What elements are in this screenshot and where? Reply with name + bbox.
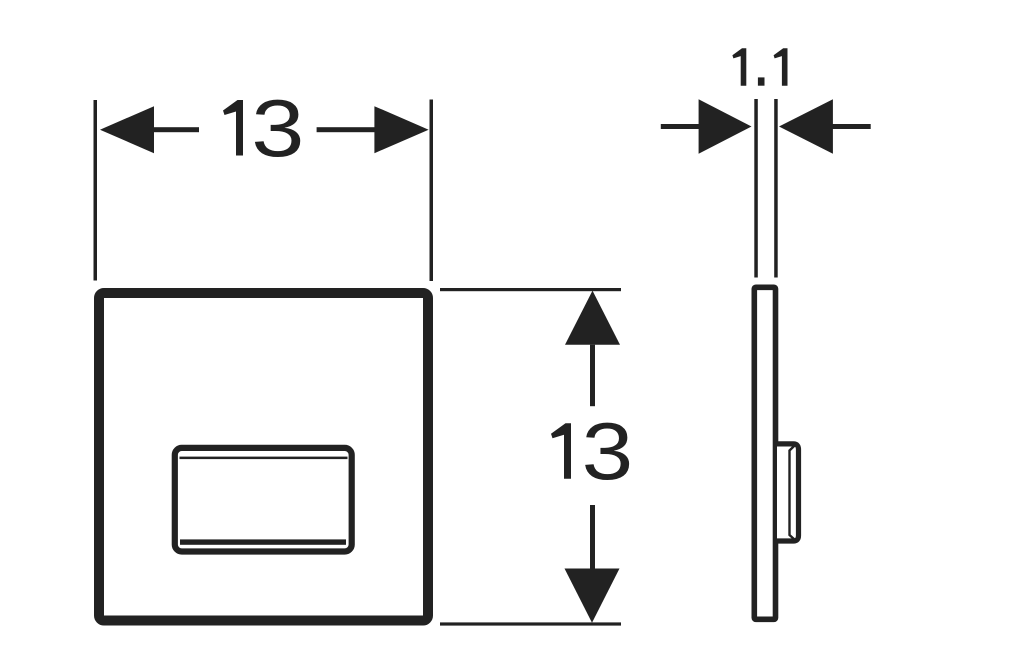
svg-text:3: 3 [582,407,634,497]
svg-text:3: 3 [251,83,304,174]
